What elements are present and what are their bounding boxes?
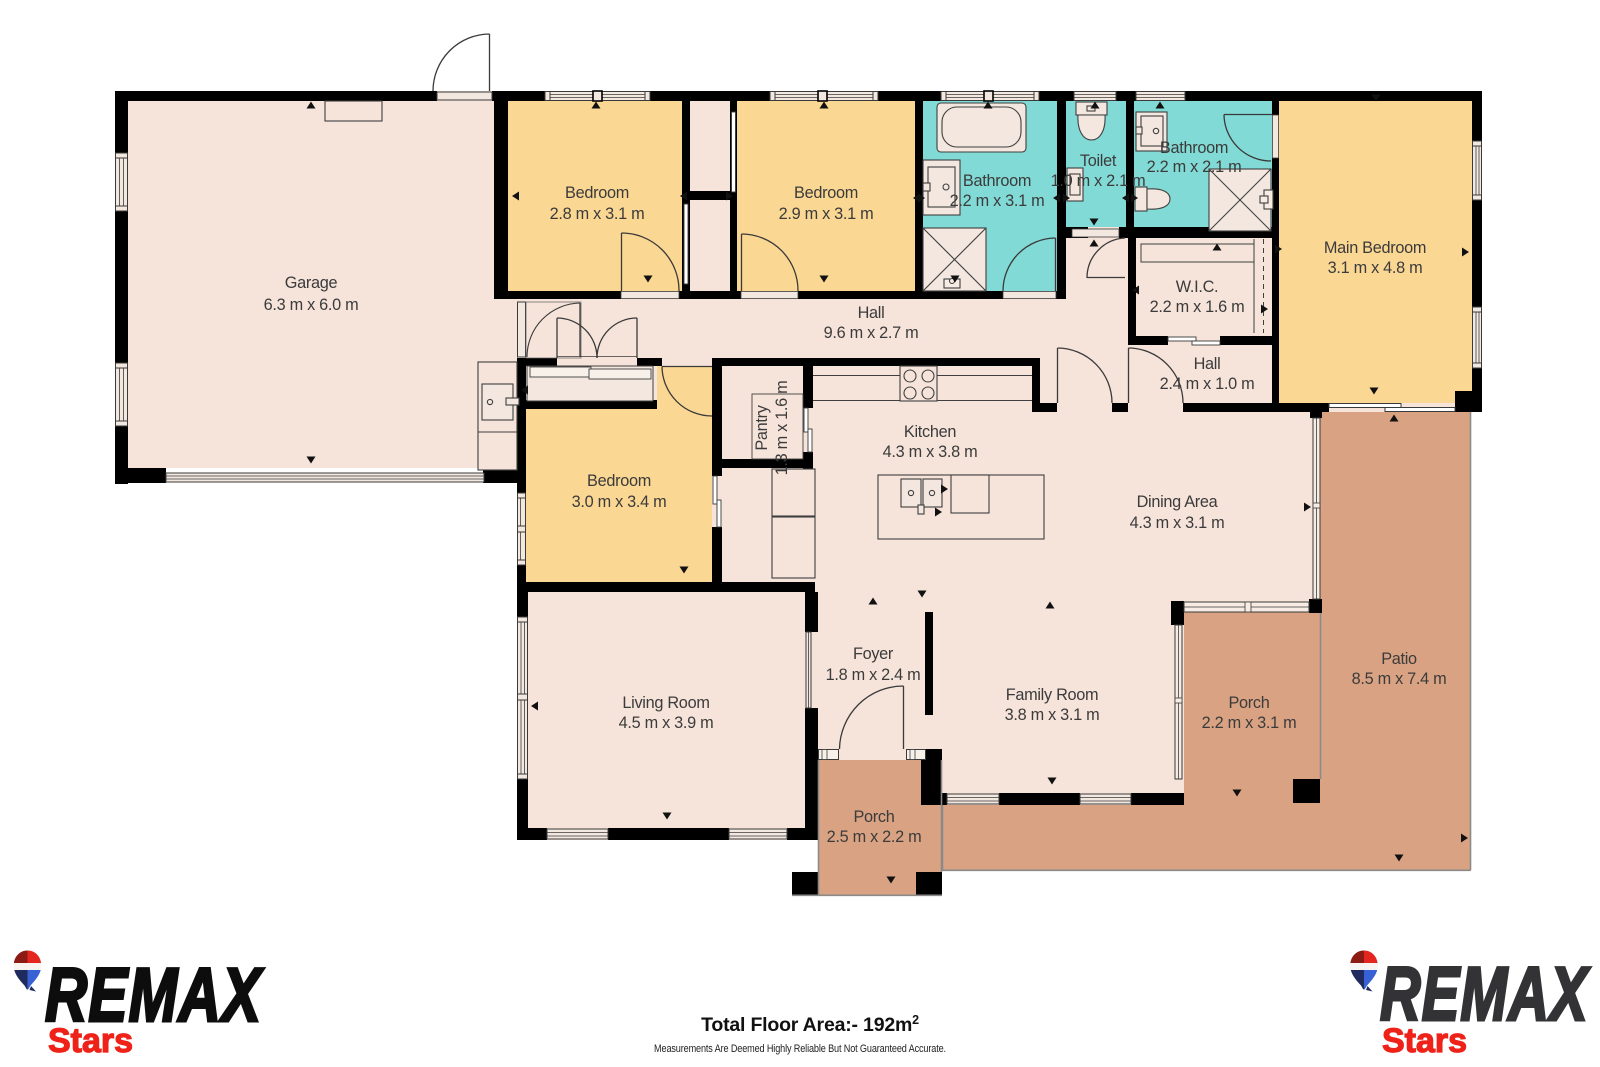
svg-text:Bedroom: Bedroom — [565, 184, 629, 202]
svg-text:8.5 m x 7.4 m: 8.5 m x 7.4 m — [1352, 670, 1447, 688]
svg-text:4.3 m x 3.8 m: 4.3 m x 3.8 m — [883, 443, 978, 461]
svg-text:2.2 m x 3.1 m: 2.2 m x 3.1 m — [1202, 714, 1297, 732]
svg-text:Garage: Garage — [285, 274, 338, 292]
svg-text:Toilet: Toilet — [1080, 152, 1117, 170]
svg-text:Bathroom: Bathroom — [963, 172, 1031, 190]
svg-text:4.3 m x 3.1 m: 4.3 m x 3.1 m — [1130, 514, 1225, 532]
svg-text:Bathroom: Bathroom — [1160, 139, 1228, 157]
svg-text:2.4 m x 1.0 m: 2.4 m x 1.0 m — [1160, 375, 1255, 393]
svg-text:Hall: Hall — [858, 304, 885, 322]
svg-text:Total Floor Area:- 192m2: Total Floor Area:- 192m2 — [701, 1013, 919, 1036]
svg-text:Foyer: Foyer — [853, 645, 894, 663]
svg-text:Stars: Stars — [48, 1022, 133, 1060]
svg-text:6.3 m x 6.0 m: 6.3 m x 6.0 m — [264, 296, 359, 314]
svg-text:1.3 m x 1.6 m: 1.3 m x 1.6 m — [773, 381, 791, 476]
svg-text:Kitchen: Kitchen — [904, 423, 956, 441]
svg-text:Measurements Are Deemed Highly: Measurements Are Deemed Highly Reliable … — [654, 1043, 946, 1055]
svg-text:Living Room: Living Room — [622, 694, 709, 712]
svg-text:3.1 m x 4.8 m: 3.1 m x 4.8 m — [1328, 259, 1423, 277]
svg-text:Bedroom: Bedroom — [794, 184, 858, 202]
svg-text:3.0 m x 3.4 m: 3.0 m x 3.4 m — [572, 493, 667, 511]
svg-text:2.2 m x 1.6 m: 2.2 m x 1.6 m — [1150, 298, 1245, 316]
svg-text:Family Room: Family Room — [1006, 686, 1099, 704]
svg-text:2.2 m x 2.1 m: 2.2 m x 2.1 m — [1147, 158, 1242, 176]
svg-text:1.8 m x 2.4 m: 1.8 m x 2.4 m — [826, 666, 921, 684]
svg-text:Pantry: Pantry — [753, 404, 771, 450]
svg-text:3.8 m x 3.1 m: 3.8 m x 3.1 m — [1005, 706, 1100, 724]
svg-text:2.9 m x 3.1 m: 2.9 m x 3.1 m — [779, 205, 874, 223]
svg-text:2.5 m x 2.2 m: 2.5 m x 2.2 m — [827, 828, 922, 846]
svg-text:Porch: Porch — [1228, 694, 1269, 712]
svg-text:Stars: Stars — [1382, 1022, 1467, 1060]
svg-text:Hall: Hall — [1194, 355, 1221, 373]
svg-text:Patio: Patio — [1381, 650, 1417, 668]
svg-text:2.2 m x 3.1 m: 2.2 m x 3.1 m — [950, 192, 1045, 210]
svg-text:Main Bedroom: Main Bedroom — [1324, 239, 1426, 257]
svg-text:1.0 m x 2.1 m: 1.0 m x 2.1 m — [1051, 172, 1146, 190]
svg-text:W.I.C.: W.I.C. — [1176, 278, 1219, 296]
svg-text:Porch: Porch — [853, 808, 894, 826]
svg-text:Bedroom: Bedroom — [587, 472, 651, 490]
svg-text:4.5 m x 3.9 m: 4.5 m x 3.9 m — [619, 714, 714, 732]
svg-text:2.8 m x 3.1 m: 2.8 m x 3.1 m — [550, 205, 645, 223]
svg-text:Dining Area: Dining Area — [1137, 493, 1219, 511]
svg-text:9.6 m x 2.7 m: 9.6 m x 2.7 m — [824, 324, 919, 342]
